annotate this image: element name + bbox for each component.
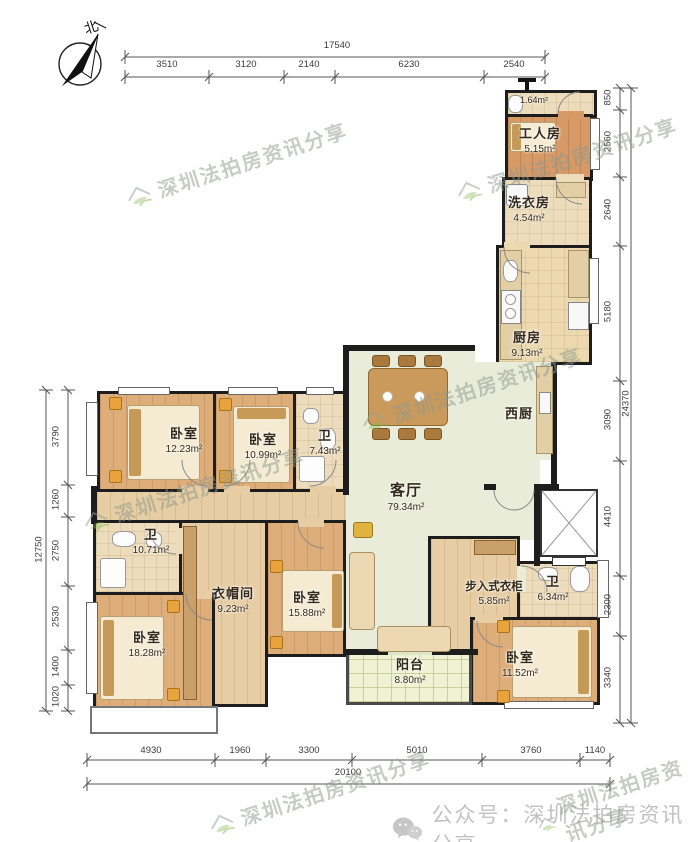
dim-bottom-seg-2: 3300 <box>286 745 332 756</box>
ottoman <box>353 522 373 538</box>
door-opening <box>182 486 208 494</box>
dining-chair <box>424 428 442 440</box>
burner <box>505 294 516 305</box>
room-foyer <box>472 458 540 540</box>
window <box>118 387 170 395</box>
wardrobe <box>183 526 197 700</box>
dim-right-seg-7: 3340 <box>603 655 614 701</box>
dim-left-seg-5: 1020 <box>51 674 62 720</box>
room-label-bath-top: 1.64m² <box>520 95 548 107</box>
dim-top-seg-4: 2540 <box>491 59 537 70</box>
nightstand <box>167 688 180 701</box>
wall-segment <box>343 345 349 495</box>
footer: 公众号：深圳法拍房资讯分享 <box>392 799 700 842</box>
window <box>228 387 278 395</box>
shower <box>299 456 325 482</box>
room-label-kitchen: 厨房9.13m² <box>511 330 542 360</box>
closet-shelf <box>474 540 516 555</box>
nightstand <box>497 690 510 703</box>
bed-pillow <box>578 630 589 694</box>
nightstand <box>219 470 232 483</box>
dim-right-seg-1: 2560 <box>603 119 614 165</box>
room-label-bath-w: 卫10.71m² <box>133 527 170 557</box>
west-kitchen-appliance <box>539 392 551 414</box>
burner <box>505 308 516 319</box>
room-label-bedroom-sw: 卧室18.28m² <box>129 630 166 660</box>
dim-top-seg-0: 3510 <box>144 59 190 70</box>
kitchen-counter <box>568 250 589 298</box>
nightstand <box>270 560 283 573</box>
dim-top-seg-1: 3120 <box>223 59 269 70</box>
bed-pillow <box>332 574 342 628</box>
room-label-walkin-closet: 步入式衣柜5.85m² <box>465 580 523 608</box>
wall-segment <box>343 345 475 351</box>
wall-segment <box>484 484 496 490</box>
nightstand <box>109 397 122 410</box>
dim-bottom-seg-3: 5010 <box>394 745 440 756</box>
door-opening <box>310 486 336 494</box>
room-label-bedroom-nw: 卧室12.23m² <box>166 426 203 456</box>
dining-chair <box>372 355 390 367</box>
sofa <box>377 626 451 652</box>
dining-chair <box>398 355 416 367</box>
dim-top-seg-3: 6230 <box>386 59 432 70</box>
window <box>590 118 600 170</box>
room-label-laundry: 洗衣房4.54m² <box>508 195 550 225</box>
north-compass: 北 <box>44 18 118 98</box>
room-corridor <box>97 488 346 522</box>
dim-bottom-seg-0: 4930 <box>128 745 174 756</box>
fridge <box>568 302 589 330</box>
wall-segment <box>534 490 540 566</box>
wall-segment <box>91 486 97 524</box>
kitchen-sink <box>503 260 518 282</box>
dim-left-seg-3: 2530 <box>51 594 62 640</box>
dim-left-seg-0: 3790 <box>51 414 62 460</box>
dim-bottom-seg-5: 1140 <box>572 745 618 756</box>
wechat-icon <box>392 815 423 842</box>
dim-right-total: 24370 <box>621 381 632 427</box>
floor-plan-canvas: 北 <box>0 0 700 842</box>
bed-pillow <box>129 409 141 476</box>
nightstand <box>109 470 122 483</box>
dim-right-seg-3: 5180 <box>603 289 614 335</box>
dim-right-seg-0: 850 <box>603 75 614 121</box>
plate <box>414 391 425 402</box>
dim-left-total: 12750 <box>34 527 45 573</box>
door-opening <box>298 518 324 527</box>
dim-right-seg-2: 2640 <box>603 187 614 233</box>
room-label-bedroom-se: 卧室11.52m² <box>502 650 538 680</box>
shower <box>100 558 126 588</box>
nightstand <box>219 398 232 411</box>
window <box>306 387 334 395</box>
dining-chair <box>372 428 390 440</box>
dim-right-seg-6: 2300 <box>603 582 614 628</box>
room-label-worker: 工人房5.15m² <box>519 126 561 156</box>
room-label-west-kitchen: 西厨 <box>505 406 533 423</box>
dim-bottom-seg-1: 1960 <box>217 745 263 756</box>
plate <box>382 391 393 402</box>
dim-bottom-seg-4: 3760 <box>508 745 554 756</box>
room-label-living: 客厅79.34m² <box>388 481 425 514</box>
bay-window <box>86 402 98 476</box>
dining-table <box>368 368 448 426</box>
laundry-counter <box>556 182 586 198</box>
elevator-ledge <box>552 557 586 566</box>
dim-right-seg-5: 4410 <box>603 494 614 540</box>
window <box>504 701 594 709</box>
door-opening <box>558 111 584 119</box>
nightstand <box>497 620 510 633</box>
sink <box>303 408 319 424</box>
bay-window <box>86 602 98 694</box>
bed-pillow <box>103 620 114 696</box>
footer-text: 公众号：深圳法拍房资讯分享 <box>432 799 700 842</box>
room-label-balcony: 阳台8.80m² <box>394 657 425 687</box>
room-label-bath-se: 卫6.34m² <box>537 574 568 604</box>
door-opening <box>224 486 250 494</box>
toilet <box>570 566 590 592</box>
dining-chair <box>398 428 416 440</box>
dim-top-total: 17540 <box>314 40 360 51</box>
bed-pillow <box>237 408 286 419</box>
terrace <box>90 706 218 734</box>
watermark: 深圳法拍房资讯分享 <box>121 115 351 214</box>
room-label-bedroom-c: 卧室15.88m² <box>289 590 326 620</box>
nightstand <box>167 600 180 613</box>
room-label-bath-n: 卫7.43m² <box>309 428 340 458</box>
nightstand <box>270 636 283 649</box>
dining-chair <box>424 355 442 367</box>
dim-bottom-total: 20100 <box>325 767 371 778</box>
dim-left-seg-1: 1260 <box>51 477 62 523</box>
watermark-text: 深圳法拍房资讯分享 <box>154 115 351 204</box>
wall-segment <box>551 452 557 488</box>
dim-right-seg-4: 3090 <box>603 397 614 443</box>
sofa <box>349 552 375 630</box>
dim-top-seg-2: 2140 <box>286 59 332 70</box>
window <box>589 258 599 324</box>
dim-left-seg-2: 2750 <box>51 528 62 574</box>
elevator-shaft <box>540 489 598 557</box>
room-label-bedroom-n: 卧室10.99m² <box>245 432 282 462</box>
room-label-cloakroom: 衣帽间9.23m² <box>212 586 254 616</box>
